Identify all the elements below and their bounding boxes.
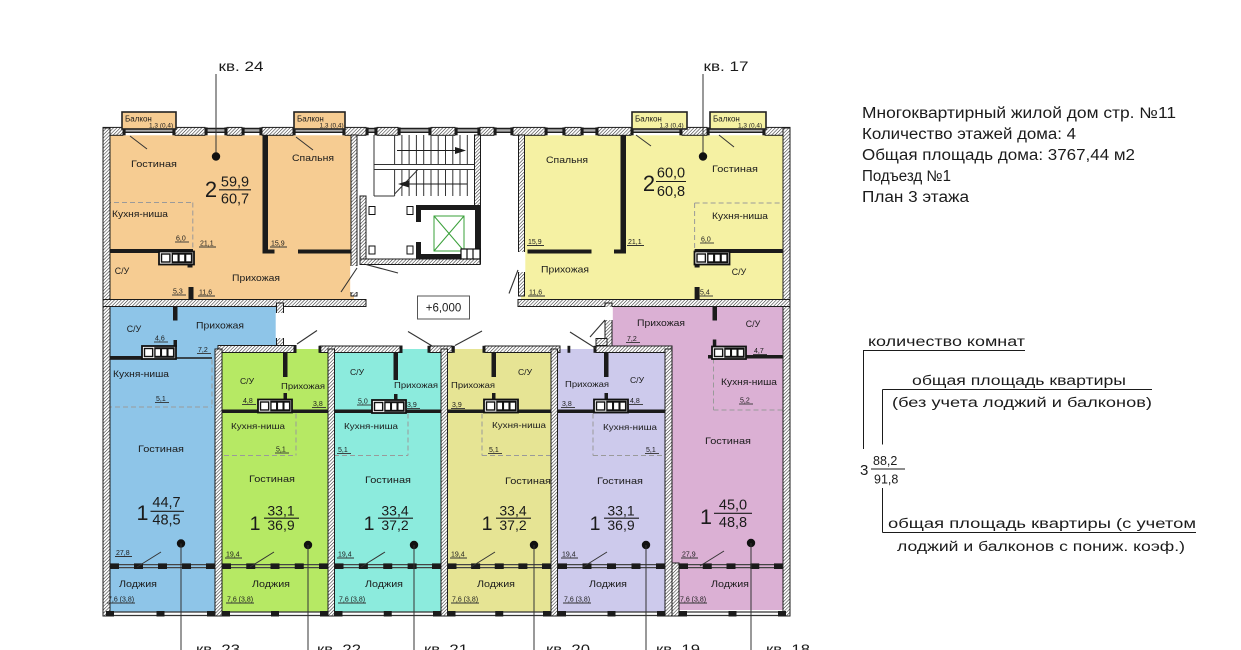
svg-text:19,4: 19,4 bbox=[226, 552, 240, 559]
svg-text:Спальня: Спальня bbox=[546, 155, 588, 165]
svg-text:15,9: 15,9 bbox=[528, 239, 542, 246]
svg-text:5,4: 5,4 bbox=[700, 290, 710, 297]
svg-text:Прихожая: Прихожая bbox=[451, 380, 495, 390]
svg-text:общая площадь квартиры: общая площадь квартиры bbox=[912, 373, 1126, 388]
svg-text:Гостиная: Гостиная bbox=[712, 164, 758, 174]
svg-text:Кухня-ниша: Кухня-ниша bbox=[231, 421, 285, 431]
svg-text:С/У: С/У bbox=[350, 367, 365, 377]
svg-text:7,6 (3,8): 7,6 (3,8) bbox=[339, 597, 365, 604]
svg-text:7,2: 7,2 bbox=[627, 336, 637, 343]
svg-text:37,2: 37,2 bbox=[499, 517, 526, 533]
svg-text:15,9: 15,9 bbox=[271, 241, 285, 248]
svg-text:Балкон: Балкон bbox=[125, 115, 152, 124]
svg-text:Лоджия: Лоджия bbox=[477, 579, 515, 589]
svg-text:Лоджия: Лоджия bbox=[711, 579, 749, 589]
svg-text:Кухня-ниша: Кухня-ниша bbox=[492, 420, 546, 430]
svg-text:+6,000: +6,000 bbox=[426, 303, 462, 315]
svg-text:Количество этажей дома: 4: Количество этажей дома: 4 bbox=[862, 126, 1077, 143]
svg-text:6,0: 6,0 bbox=[176, 236, 186, 243]
svg-text:Гостиная: Гостиная bbox=[505, 476, 551, 486]
svg-text:Подъезд №1: Подъезд №1 bbox=[862, 168, 951, 185]
svg-text:1: 1 bbox=[482, 513, 493, 535]
svg-text:3: 3 bbox=[860, 462, 868, 479]
svg-text:7,6 (3,8): 7,6 (3,8) bbox=[680, 597, 706, 604]
svg-text:59,9: 59,9 bbox=[221, 175, 249, 191]
svg-text:количество комнат: количество комнат bbox=[868, 334, 1025, 349]
svg-text:5,1: 5,1 bbox=[646, 447, 656, 454]
svg-text:7,6 (3,8): 7,6 (3,8) bbox=[452, 597, 478, 604]
svg-text:5,2: 5,2 bbox=[740, 398, 750, 405]
svg-text:19,4: 19,4 bbox=[562, 552, 576, 559]
svg-text:(без учета лоджий и балконов): (без учета лоджий и балконов) bbox=[892, 395, 1152, 410]
svg-text:6,0: 6,0 bbox=[701, 237, 711, 244]
svg-text:37,2: 37,2 bbox=[381, 517, 408, 533]
svg-text:27,8: 27,8 bbox=[116, 550, 130, 557]
svg-text:кв. 18: кв. 18 bbox=[766, 642, 810, 650]
svg-text:кв. 20: кв. 20 bbox=[546, 642, 590, 650]
svg-text:21,1: 21,1 bbox=[200, 241, 214, 248]
svg-text:1: 1 bbox=[590, 513, 601, 535]
svg-text:кв. 17: кв. 17 bbox=[704, 59, 749, 74]
svg-text:Гостиная: Гостиная bbox=[365, 475, 411, 485]
svg-text:Прихожая: Прихожая bbox=[565, 379, 609, 389]
svg-text:С/У: С/У bbox=[127, 324, 142, 334]
svg-text:кв. 19: кв. 19 bbox=[656, 642, 700, 650]
svg-text:7,2: 7,2 bbox=[198, 347, 208, 354]
svg-text:5,1: 5,1 bbox=[338, 447, 348, 454]
svg-text:Прихожая: Прихожая bbox=[541, 265, 589, 275]
svg-text:Гостиная: Гостиная bbox=[249, 474, 295, 484]
svg-text:Кухня-ниша: Кухня-ниша bbox=[712, 211, 768, 221]
svg-text:Гостиная: Гостиная bbox=[138, 444, 184, 454]
svg-text:Лоджия: Лоджия bbox=[589, 579, 627, 589]
svg-text:Прихожая: Прихожая bbox=[281, 381, 325, 391]
svg-text:4,7: 4,7 bbox=[754, 348, 764, 355]
svg-text:91,8: 91,8 bbox=[874, 473, 898, 487]
svg-text:60,7: 60,7 bbox=[221, 192, 249, 208]
svg-text:27,9: 27,9 bbox=[682, 552, 696, 559]
svg-text:7,6 (3,8): 7,6 (3,8) bbox=[108, 597, 134, 604]
svg-text:Общая площадь дома: 3767,44 м2: Общая площадь дома: 3767,44 м2 bbox=[862, 147, 1135, 164]
svg-text:45,0: 45,0 bbox=[719, 498, 747, 514]
svg-text:5,0: 5,0 bbox=[358, 399, 368, 406]
svg-text:Кухня-ниша: Кухня-ниша bbox=[721, 377, 777, 387]
svg-text:3,8: 3,8 bbox=[313, 401, 323, 408]
svg-text:кв. 24: кв. 24 bbox=[219, 59, 265, 74]
svg-text:Кухня-ниша: Кухня-ниша bbox=[603, 422, 657, 432]
svg-text:План 3 этажа: План 3 этажа bbox=[862, 189, 970, 206]
svg-text:1: 1 bbox=[364, 513, 375, 535]
svg-text:2: 2 bbox=[643, 171, 655, 196]
svg-text:Прихожая: Прихожая bbox=[196, 321, 244, 331]
svg-text:3,9: 3,9 bbox=[407, 402, 417, 409]
svg-text:С/У: С/У bbox=[630, 375, 645, 385]
svg-text:Лоджия: Лоджия bbox=[252, 579, 290, 589]
svg-text:С/У: С/У bbox=[240, 376, 255, 386]
svg-text:Гостиная: Гостиная bbox=[705, 436, 751, 446]
svg-text:4,8: 4,8 bbox=[243, 398, 253, 405]
svg-text:4,8: 4,8 bbox=[630, 398, 640, 405]
svg-text:5,1: 5,1 bbox=[276, 447, 286, 454]
svg-text:Гостиная: Гостиная bbox=[131, 159, 177, 169]
svg-text:С/У: С/У bbox=[115, 266, 130, 276]
svg-text:Лоджия: Лоджия bbox=[119, 579, 157, 589]
svg-text:1: 1 bbox=[137, 501, 149, 525]
svg-text:60,8: 60,8 bbox=[657, 184, 685, 200]
svg-text:общая площадь квартиры (с уче: общая площадь квартиры (с учетом bbox=[888, 516, 1196, 531]
svg-text:11,6: 11,6 bbox=[529, 290, 542, 297]
svg-text:1: 1 bbox=[700, 505, 712, 529]
svg-text:7,6 (3,8): 7,6 (3,8) bbox=[227, 597, 253, 604]
svg-text:60,0: 60,0 bbox=[657, 166, 685, 182]
svg-text:Кухня-ниша: Кухня-ниша bbox=[112, 209, 168, 219]
svg-text:3,8: 3,8 bbox=[562, 401, 572, 408]
svg-text:5,3: 5,3 bbox=[173, 289, 183, 296]
svg-text:4,6: 4,6 bbox=[155, 336, 165, 343]
svg-text:Лоджия: Лоджия bbox=[365, 579, 403, 589]
svg-text:кв. 23: кв. 23 bbox=[196, 642, 240, 650]
svg-text:21,1: 21,1 bbox=[628, 239, 642, 246]
svg-text:Кухня-ниша: Кухня-ниша bbox=[113, 369, 169, 379]
svg-text:лоджий и балконов с пониж. коэ: лоджий и балконов с пониж. коэф.) bbox=[897, 539, 1185, 554]
svg-text:3,9: 3,9 bbox=[452, 402, 462, 409]
svg-text:44,7: 44,7 bbox=[152, 495, 180, 511]
svg-text:С/У: С/У bbox=[518, 367, 533, 377]
svg-text:88,2: 88,2 bbox=[873, 454, 897, 468]
svg-text:Прихожая: Прихожая bbox=[394, 380, 438, 390]
svg-text:С/У: С/У bbox=[746, 319, 761, 329]
svg-text:Спальня: Спальня bbox=[292, 153, 334, 163]
svg-text:19,4: 19,4 bbox=[451, 552, 465, 559]
svg-text:36,9: 36,9 bbox=[607, 517, 634, 533]
svg-text:1: 1 bbox=[250, 513, 261, 535]
svg-text:11,6: 11,6 bbox=[199, 290, 212, 297]
svg-text:Прихожая: Прихожая bbox=[637, 318, 685, 328]
svg-text:кв. 22: кв. 22 bbox=[317, 642, 361, 650]
svg-text:48,8: 48,8 bbox=[719, 515, 747, 531]
svg-text:Гостиная: Гостиная bbox=[597, 476, 643, 486]
svg-text:2: 2 bbox=[205, 177, 217, 202]
svg-text:48,5: 48,5 bbox=[152, 513, 180, 529]
svg-text:Кухня-ниша: Кухня-ниша bbox=[344, 421, 398, 431]
svg-text:Прихожая: Прихожая bbox=[232, 273, 280, 283]
svg-text:5,1: 5,1 bbox=[156, 396, 166, 403]
svg-text:19,4: 19,4 bbox=[338, 552, 352, 559]
svg-text:5,1: 5,1 bbox=[489, 447, 499, 454]
svg-text:кв. 21: кв. 21 bbox=[424, 642, 468, 650]
svg-text:Балкон: Балкон bbox=[635, 115, 662, 124]
svg-text:Балкон: Балкон bbox=[713, 115, 740, 124]
svg-text:С/У: С/У bbox=[732, 267, 747, 277]
svg-text:Многоквартирный жилой дом стр.: Многоквартирный жилой дом стр. №11 bbox=[862, 105, 1176, 122]
svg-text:36,9: 36,9 bbox=[267, 517, 294, 533]
svg-text:7,6 (3,8): 7,6 (3,8) bbox=[564, 597, 590, 604]
